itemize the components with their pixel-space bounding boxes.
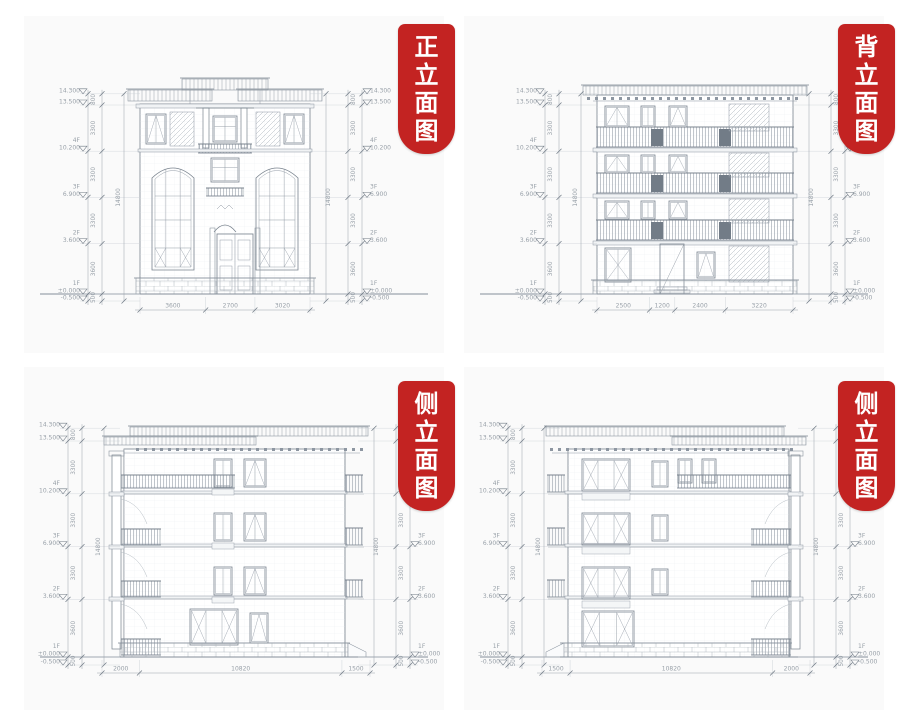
panel-side-elevation-left: 14.30013.5004F10.2003F6.9002F3.6001F±0.0… bbox=[24, 367, 444, 710]
elevation-label: 13.500 bbox=[516, 99, 537, 106]
floor-label: 2F bbox=[858, 585, 866, 592]
floor-label: 1F bbox=[853, 280, 861, 287]
segment-dim: 3300 bbox=[71, 565, 77, 580]
elevation-label: -0.500 bbox=[418, 659, 438, 666]
elevation-label: 3.600 bbox=[520, 237, 537, 244]
elevation-label: 10.200 bbox=[370, 145, 391, 152]
segment-dim: 3300 bbox=[71, 513, 77, 528]
bottom-dim: 1500 bbox=[548, 666, 563, 673]
bottom-dim: 3220 bbox=[752, 303, 767, 310]
label-char: 图 bbox=[855, 117, 879, 145]
segment-dim: 3300 bbox=[351, 167, 357, 182]
elevation-label: ±0.000 bbox=[858, 651, 880, 658]
elevation-label: 6.900 bbox=[858, 540, 875, 547]
back-elevation-drawing: 14.30013.5004F10.2003F6.9002F3.6001F±0.0… bbox=[464, 16, 884, 353]
panel-back-elevation: 14.30013.5004F10.2003F6.9002F3.6001F±0.0… bbox=[464, 16, 884, 353]
segment-dim: 3600 bbox=[351, 261, 357, 276]
elevation-label: -0.500 bbox=[518, 295, 538, 302]
elevation-label: 14.300 bbox=[516, 87, 537, 94]
segment-dim: 3600 bbox=[548, 261, 554, 276]
back-elevation-label: 背 立 面 图 bbox=[838, 24, 895, 154]
total-height-dim: 14800 bbox=[809, 188, 815, 207]
elevation-label: 3.600 bbox=[858, 593, 875, 600]
floor-label: 4F bbox=[73, 137, 81, 144]
label-char: 面 bbox=[855, 89, 879, 117]
floor-label: 4F bbox=[493, 480, 501, 487]
elevation-sheet: { "page": { "background": "#ffffff", "pa… bbox=[0, 0, 910, 725]
label-char: 背 bbox=[855, 33, 879, 61]
label-char: 正 bbox=[415, 33, 439, 61]
elevation-label: 14.300 bbox=[39, 422, 60, 429]
elevation-label: ±0.000 bbox=[853, 288, 875, 295]
floor-label: 4F bbox=[530, 137, 538, 144]
elevation-label: 6.900 bbox=[43, 540, 60, 547]
elevation-label: -0.500 bbox=[858, 659, 878, 666]
elevation-label: ±0.000 bbox=[515, 288, 537, 295]
bottom-dim: 3020 bbox=[275, 303, 290, 310]
segment-dim: 3300 bbox=[399, 513, 405, 528]
floor-label: 4F bbox=[370, 137, 378, 144]
floor-label: 1F bbox=[73, 280, 81, 287]
floor-label: 2F bbox=[530, 230, 538, 237]
elevation-label: 10.200 bbox=[516, 145, 537, 152]
segment-dim: 3300 bbox=[834, 167, 840, 182]
segment-dim: 500 bbox=[351, 292, 357, 303]
elevation-label: 14.300 bbox=[59, 87, 80, 94]
elevation-label: -0.500 bbox=[41, 659, 61, 666]
elevation-label: -0.500 bbox=[370, 295, 390, 302]
segment-dim: 500 bbox=[91, 292, 97, 303]
elevation-label: 14.300 bbox=[370, 87, 391, 94]
bottom-dim: 1200 bbox=[655, 303, 670, 310]
segment-dim: 3300 bbox=[399, 565, 405, 580]
floor-label: 2F bbox=[418, 585, 426, 592]
panel-front-elevation: 14.30013.5004F10.2003F6.9002F3.6001F±0.0… bbox=[24, 16, 444, 353]
label-char: 侧 bbox=[415, 390, 439, 418]
elevation-label: 14.300 bbox=[479, 422, 500, 429]
elevation-label: 3.600 bbox=[483, 593, 500, 600]
total-height-dim: 14800 bbox=[116, 188, 122, 207]
bottom-dim: 3600 bbox=[165, 303, 180, 310]
segment-dim: 800 bbox=[548, 94, 554, 105]
panel-side-elevation-right: 14.30013.5004F10.2003F6.9002F3.6001F±0.0… bbox=[464, 367, 884, 710]
segment-dim: 3300 bbox=[91, 213, 97, 228]
floor-label: 2F bbox=[493, 585, 501, 592]
segment-dim: 3600 bbox=[834, 261, 840, 276]
floor-label: 3F bbox=[370, 183, 378, 190]
segment-dim: 3300 bbox=[548, 167, 554, 182]
label-char: 面 bbox=[855, 446, 879, 474]
segment-dim: 3300 bbox=[91, 120, 97, 135]
floor-label: 1F bbox=[370, 280, 378, 287]
total-height-dim: 14800 bbox=[326, 188, 332, 207]
label-char: 立 bbox=[415, 61, 439, 89]
segment-dim: 800 bbox=[71, 429, 77, 440]
segment-dim: 800 bbox=[511, 429, 517, 440]
label-char: 面 bbox=[415, 89, 439, 117]
elevation-label: -0.500 bbox=[853, 295, 873, 302]
total-height-dim: 14800 bbox=[96, 537, 102, 556]
total-height-dim: 14800 bbox=[536, 537, 542, 556]
label-char: 立 bbox=[855, 418, 879, 446]
elevation-label: 13.500 bbox=[59, 99, 80, 106]
segment-dim: 3300 bbox=[71, 460, 77, 475]
segment-dim: 3600 bbox=[839, 621, 845, 636]
building-drawing bbox=[544, 426, 808, 657]
elevation-label: 13.500 bbox=[370, 99, 391, 106]
segment-dim: 500 bbox=[71, 655, 77, 666]
elevation-label: 6.900 bbox=[370, 191, 387, 198]
segment-dim: 800 bbox=[91, 94, 97, 105]
floor-label: 1F bbox=[858, 643, 866, 650]
elevation-label: 6.900 bbox=[853, 191, 870, 198]
floor-label: 2F bbox=[853, 230, 861, 237]
elevation-label: 13.500 bbox=[479, 435, 500, 442]
elevation-label: 6.900 bbox=[63, 191, 80, 198]
label-char: 立 bbox=[855, 61, 879, 89]
segment-dim: 3600 bbox=[91, 261, 97, 276]
segment-dim: 500 bbox=[839, 655, 845, 666]
side-elevation-left-label: 侧 立 面 图 bbox=[398, 381, 455, 511]
floor-label: 3F bbox=[853, 183, 861, 190]
floor-label: 4F bbox=[53, 480, 61, 487]
segment-dim: 500 bbox=[548, 292, 554, 303]
total-height-dim: 14800 bbox=[374, 537, 380, 556]
segment-dim: 3300 bbox=[511, 513, 517, 528]
floor-label: 2F bbox=[73, 230, 81, 237]
floor-label: 2F bbox=[370, 230, 378, 237]
segment-dim: 3300 bbox=[548, 120, 554, 135]
floor-label: 1F bbox=[418, 643, 426, 650]
total-height-dim: 14800 bbox=[573, 188, 579, 207]
segment-dim: 3600 bbox=[399, 621, 405, 636]
segment-dim: 3300 bbox=[91, 167, 97, 182]
total-height-dim: 14800 bbox=[814, 537, 820, 556]
label-char: 立 bbox=[415, 418, 439, 446]
floor-label: 3F bbox=[418, 533, 426, 540]
segment-dim: 3300 bbox=[351, 120, 357, 135]
elevation-label: 3.600 bbox=[43, 593, 60, 600]
label-char: 侧 bbox=[855, 390, 879, 418]
segment-dim: 500 bbox=[834, 292, 840, 303]
floor-label: 1F bbox=[530, 280, 538, 287]
bottom-dim: 2000 bbox=[113, 666, 128, 673]
side-elevation-right-label: 侧 立 面 图 bbox=[838, 381, 895, 511]
segment-dim: 800 bbox=[351, 94, 357, 105]
building-drawing bbox=[102, 426, 370, 657]
floor-label: 3F bbox=[53, 533, 61, 540]
segment-dim: 3300 bbox=[511, 565, 517, 580]
segment-dim: 3300 bbox=[839, 513, 845, 528]
elevation-label: 3.600 bbox=[853, 237, 870, 244]
building-drawing bbox=[581, 85, 809, 294]
bottom-dim: 10820 bbox=[662, 666, 681, 673]
segment-dim: 3300 bbox=[839, 565, 845, 580]
elevation-label: ±0.000 bbox=[418, 651, 440, 658]
floor-label: 3F bbox=[530, 183, 538, 190]
floor-label: 1F bbox=[53, 643, 61, 650]
label-char: 面 bbox=[415, 446, 439, 474]
side-elevation-right-drawing: 14.30013.5004F10.2003F6.9002F3.6001F±0.0… bbox=[464, 367, 884, 710]
segment-dim: 500 bbox=[511, 655, 517, 666]
elevation-label: 3.600 bbox=[63, 237, 80, 244]
elevation-label: -0.500 bbox=[481, 659, 501, 666]
elevation-label: ±0.000 bbox=[478, 651, 500, 658]
segment-dim: 3600 bbox=[71, 621, 77, 636]
label-char: 图 bbox=[415, 117, 439, 145]
elevation-label: ±0.000 bbox=[38, 651, 60, 658]
elevation-label: 13.500 bbox=[39, 435, 60, 442]
segment-dim: 3300 bbox=[834, 213, 840, 228]
label-char: 图 bbox=[855, 474, 879, 502]
floor-label: 2F bbox=[53, 585, 61, 592]
floor-label: 1F bbox=[493, 643, 501, 650]
segment-dim: 3300 bbox=[511, 460, 517, 475]
front-elevation-drawing: 14.30013.5004F10.2003F6.9002F3.6001F±0.0… bbox=[24, 16, 444, 353]
bottom-dim: 2500 bbox=[616, 303, 631, 310]
elevation-label: 6.900 bbox=[520, 191, 537, 198]
label-char: 图 bbox=[415, 474, 439, 502]
segment-dim: 3300 bbox=[548, 213, 554, 228]
segment-dim: 3600 bbox=[511, 621, 517, 636]
building-drawing bbox=[126, 78, 324, 294]
front-elevation-label: 正 立 面 图 bbox=[398, 24, 455, 154]
elevation-label: -0.500 bbox=[61, 295, 81, 302]
side-elevation-left-drawing: 14.30013.5004F10.2003F6.9002F3.6001F±0.0… bbox=[24, 367, 444, 710]
elevation-label: ±0.000 bbox=[370, 288, 392, 295]
elevation-label: 3.600 bbox=[370, 237, 387, 244]
bottom-dim: 2700 bbox=[223, 303, 238, 310]
floor-label: 3F bbox=[858, 533, 866, 540]
floor-label: 3F bbox=[73, 183, 81, 190]
elevation-label: 3.600 bbox=[418, 593, 435, 600]
elevation-label: ±0.000 bbox=[58, 288, 80, 295]
elevation-label: 10.200 bbox=[479, 487, 500, 494]
bottom-dim: 10820 bbox=[231, 666, 250, 673]
elevation-label: 10.200 bbox=[59, 145, 80, 152]
floor-label: 3F bbox=[493, 533, 501, 540]
segment-dim: 3300 bbox=[351, 213, 357, 228]
segment-dim: 500 bbox=[399, 655, 405, 666]
elevation-label: 6.900 bbox=[483, 540, 500, 547]
bottom-dim: 1500 bbox=[348, 666, 363, 673]
bottom-dim: 2400 bbox=[692, 303, 707, 310]
elevation-label: 10.200 bbox=[39, 487, 60, 494]
bottom-dim: 2000 bbox=[784, 666, 799, 673]
elevation-label: 6.900 bbox=[418, 540, 435, 547]
